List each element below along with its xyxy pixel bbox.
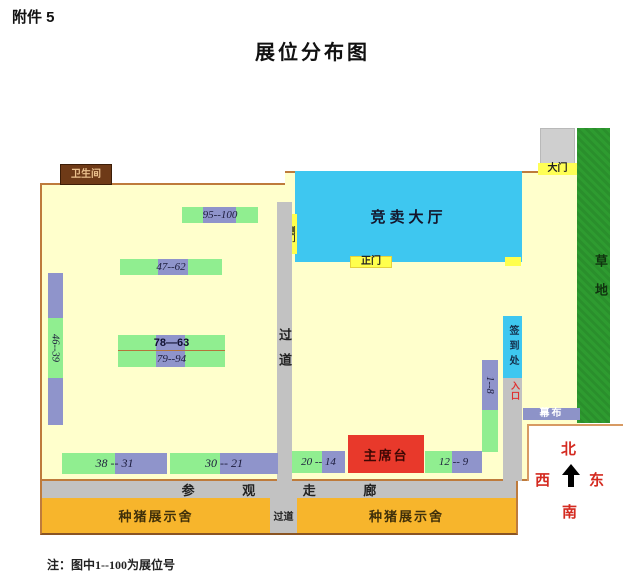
north-arrow-icon [561, 464, 581, 488]
booth-46-39: 46--39 [48, 273, 63, 425]
main-door-label: 正门 [350, 256, 392, 268]
pig-house-left: 种猪展示舍 [42, 498, 270, 533]
compass-west: 西 [535, 469, 550, 490]
booth-47-62-label: 47--62 [120, 259, 222, 275]
booth-1-8-label: 1--8 [465, 377, 515, 393]
restroom-label: 卫生间 [60, 164, 112, 185]
auction-hall: 竞卖大厅 [295, 171, 522, 262]
north-arrow-stem [568, 474, 574, 487]
booth-30-21: 30 -- 21 [170, 453, 278, 474]
booth-79-94-label: 79--94 [118, 351, 225, 367]
booth-95-100-label: 95--100 [182, 207, 258, 223]
booth-1-8: 1--8 [482, 360, 498, 452]
booth-30-21-label: 30 -- 21 [170, 453, 278, 474]
pig-house-row: 种猪展示舍 过道 种猪展示舍 [42, 498, 516, 533]
booth-12-9-label: 12 -- 9 [425, 451, 482, 473]
booth-38-31: 38 -- 31 [62, 453, 167, 474]
booth-38-31-label: 38 -- 31 [62, 453, 167, 474]
booth-map-page: 附件 5 展位分布图 草地 大门 卫生间 竞卖大厅 侧门 正门 过道 签到处 入… [0, 0, 625, 585]
booth-12-9: 12 -- 9 [425, 451, 482, 473]
booth-47-62: 47--62 [120, 259, 222, 275]
visitor-walkway: 参 观 走 廊 [42, 481, 516, 498]
booth-95-100: 95--100 [182, 207, 258, 223]
booth-78-63-label: 78—63 [118, 335, 225, 350]
booth-1-8-bottom-segment [482, 410, 498, 452]
hall-right-door [505, 257, 521, 266]
podium: 主席台 [348, 435, 424, 473]
compass-south: 南 [562, 501, 577, 522]
booth-1-8-top-segment: 1--8 [482, 360, 498, 410]
attachment-label: 附件 5 [12, 6, 55, 27]
grass-label: 草地 [577, 238, 610, 328]
signin-desk: 签到处 [503, 316, 522, 378]
gate-label: 大门 [538, 163, 577, 175]
booth-46-39-label: 46--39 [26, 341, 86, 356]
compass-north: 北 [561, 438, 576, 459]
booth-46-39-bottom-segment [48, 378, 63, 425]
auction-hall-label: 竞卖大厅 [370, 206, 446, 227]
booth-46-39-top-segment [48, 273, 63, 318]
booth-46-39-mid-segment: 46--39 [48, 318, 63, 378]
bottom-bands: 参 观 走 廊 种猪展示舍 过道 种猪展示舍 [40, 481, 518, 535]
booth-79-94-row: 79--94 [118, 351, 225, 367]
booth-78-63-row: 78—63 [118, 335, 225, 351]
center-aisle-label: 过道 [276, 326, 293, 380]
booth-20-14: 20 -- 14 [292, 451, 345, 473]
compass-east: 东 [589, 469, 604, 490]
footnote: 注：图中1--100为展位号 [47, 556, 175, 573]
curtain-label: 幕布 [523, 408, 580, 420]
pig-house-right: 种猪展示舍 [297, 498, 516, 533]
booth-78-63-79-94: 78—63 79--94 [118, 335, 225, 367]
page-title: 展位分布图 [0, 36, 625, 65]
booth-20-14-label: 20 -- 14 [292, 451, 345, 473]
signin-desk-label: 签到处 [505, 325, 520, 370]
gate-block [540, 128, 575, 164]
bottom-aisle: 过道 [270, 498, 297, 533]
